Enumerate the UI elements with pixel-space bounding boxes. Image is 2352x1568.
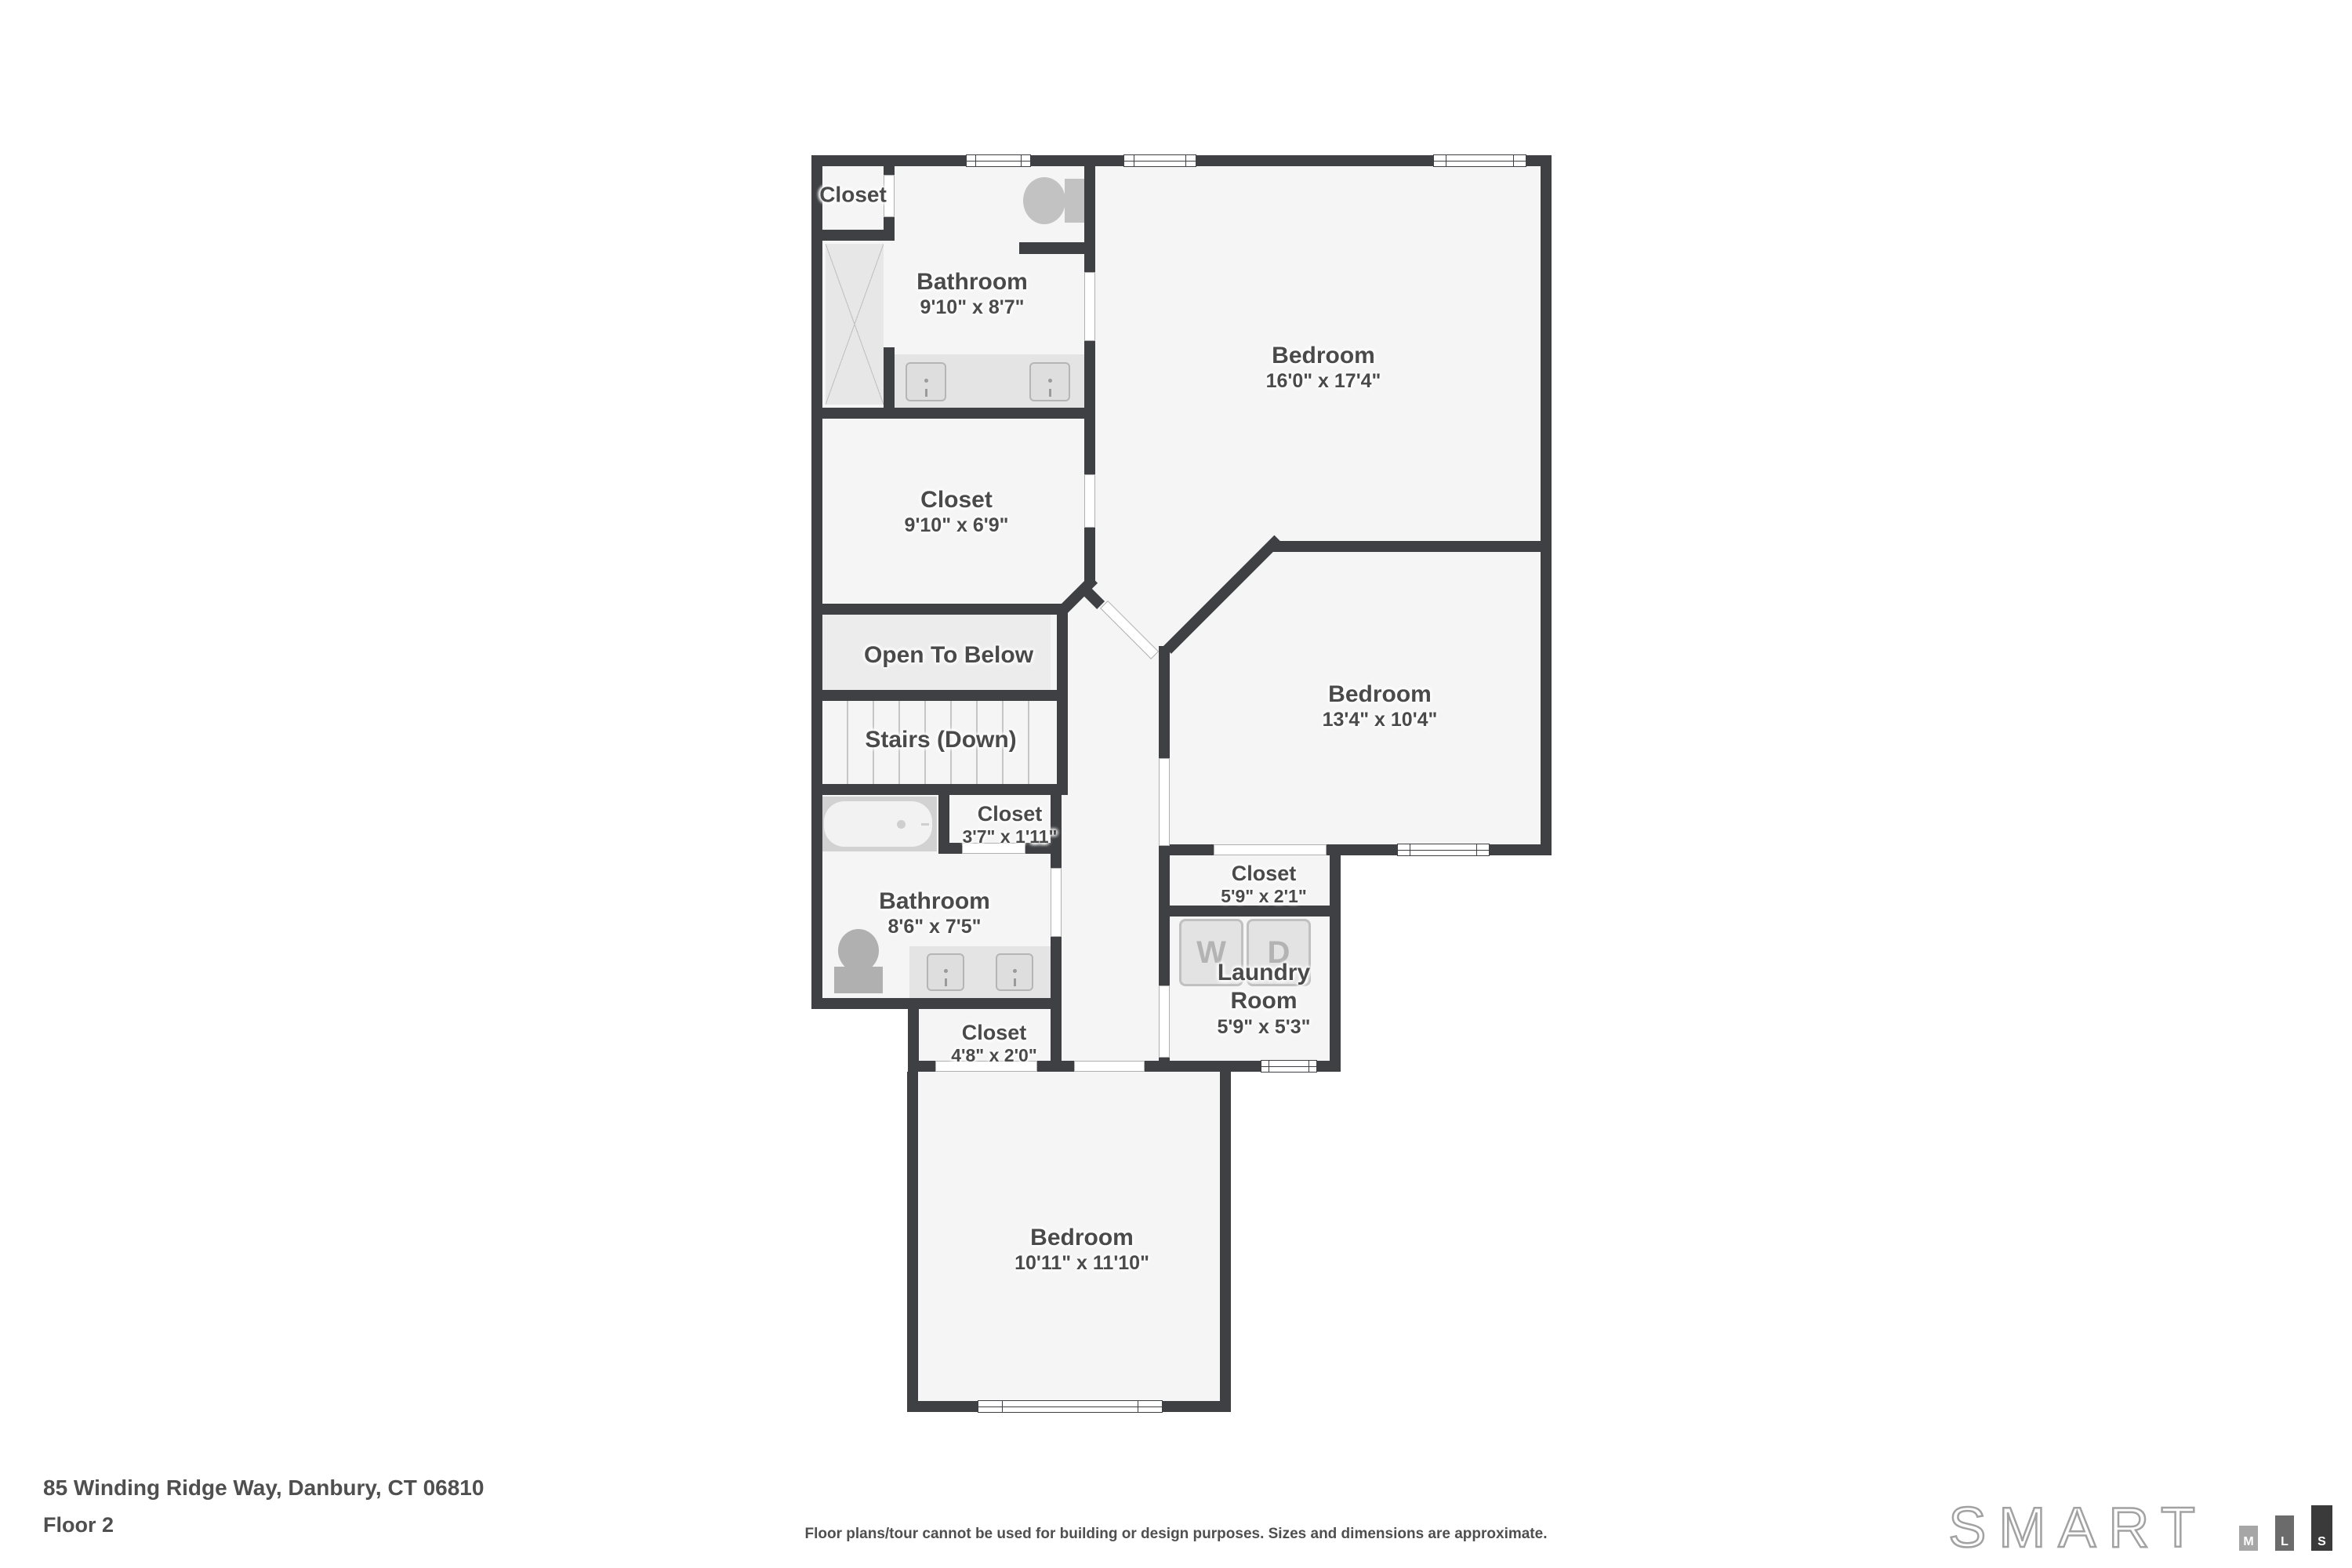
- logo-bar-l: L: [2275, 1515, 2294, 1551]
- room-label-master-bedroom: Bedroom16'0" x 17'4": [1266, 343, 1381, 393]
- room-label-stairs: Stairs (Down): [865, 727, 1016, 753]
- room-label-bedroom-2: Bedroom13'4" x 10'4": [1323, 681, 1438, 731]
- logo-brand-text: SMART: [1948, 1505, 2208, 1551]
- door-opening-bedroom-bottom: [1074, 1061, 1145, 1072]
- window-icon: [1123, 154, 1196, 167]
- toilet-icon: [838, 929, 879, 972]
- room-label-master-bathroom: Bathroom9'10" x 8'7": [916, 269, 1028, 319]
- room-label-closet-top: Closet: [819, 183, 887, 207]
- floor-plan: W D Closet Ba: [0, 0, 2352, 1568]
- door-opening-walkin-closet: [1084, 474, 1095, 528]
- toilet-tank: [834, 967, 883, 993]
- room-label-open-to-below: Open To Below: [864, 642, 1033, 669]
- wall: [907, 1072, 918, 1412]
- wall: [811, 604, 1066, 615]
- door-opening-bedroom-2: [1159, 758, 1170, 846]
- shower-icon: [826, 244, 884, 405]
- wall: [1220, 1061, 1231, 1412]
- wall: [811, 408, 1095, 419]
- room-label-bedroom-bottom: Bedroom10'11" x 11'10": [1014, 1225, 1149, 1275]
- address-text: 85 Winding Ridge Way, Danbury, CT 06810: [43, 1475, 484, 1501]
- room-label-walkin-closet: Closet9'10" x 6'9": [905, 487, 1009, 537]
- wall: [908, 1009, 919, 1061]
- sink-icon: [996, 953, 1033, 991]
- sink-icon: [906, 362, 946, 401]
- door-opening-laundry: [1159, 985, 1170, 1058]
- sink-icon: [1029, 362, 1070, 401]
- window-icon: [1261, 1060, 1317, 1073]
- toilet-tank: [1065, 179, 1085, 223]
- smart-mls-logo: SMART M L S: [1948, 1505, 2332, 1551]
- wall: [811, 784, 1062, 795]
- wall: [1159, 906, 1341, 916]
- room-label-closet-37: Closet3'7" x 1'11": [962, 802, 1057, 848]
- wall: [884, 347, 895, 408]
- sink-icon: [927, 953, 964, 991]
- bathtub-icon: [824, 801, 932, 847]
- door-opening-closet-59: [1214, 844, 1327, 855]
- room-label-hall-bathroom: Bathroom8'6" x 7'5": [879, 888, 990, 938]
- wall: [1051, 1009, 1062, 1061]
- room-label-closet-59: Closet5'9" x 2'1": [1221, 862, 1307, 907]
- wall: [811, 998, 1062, 1009]
- door-opening-hall-bath: [1051, 868, 1062, 937]
- window-icon: [1433, 154, 1526, 167]
- wall: [811, 690, 1068, 701]
- wall: [1273, 541, 1552, 552]
- toilet-icon: [1023, 177, 1065, 224]
- logo-bar-m: M: [2239, 1526, 2258, 1551]
- wall: [811, 155, 822, 1009]
- window-icon: [966, 154, 1031, 167]
- wall: [1541, 155, 1552, 855]
- room-label-closet-48: Closet4'8" x 2'0": [951, 1021, 1037, 1066]
- window-icon: [1397, 844, 1490, 856]
- wall: [811, 230, 895, 241]
- door-opening-master-bath: [1084, 272, 1095, 341]
- logo-bar-s: S: [2311, 1505, 2332, 1551]
- room-label-laundry: Laundry Room5'9" x 5'3": [1196, 959, 1333, 1039]
- window-icon: [978, 1400, 1163, 1413]
- wall: [1019, 242, 1084, 254]
